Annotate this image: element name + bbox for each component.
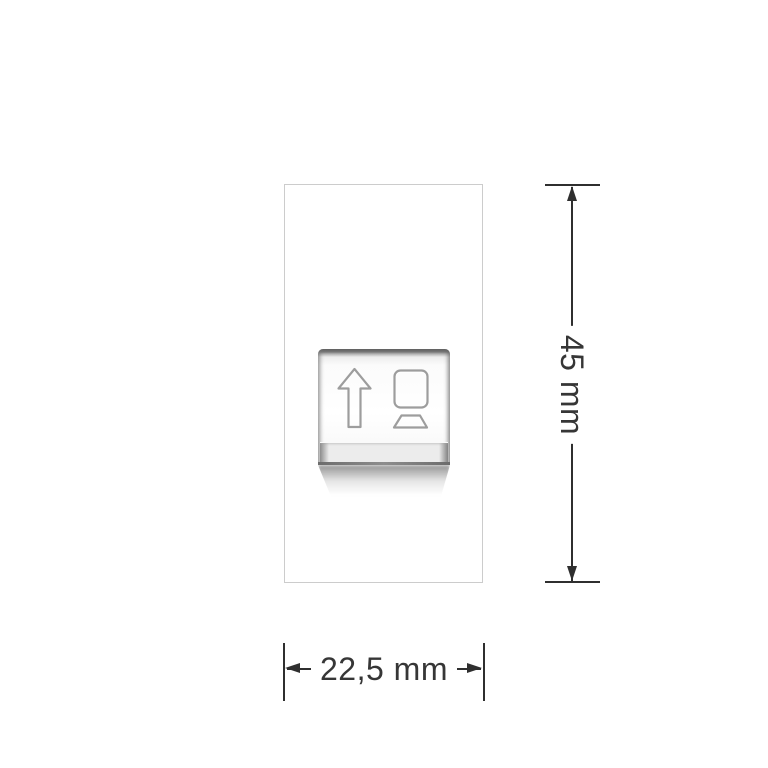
computer-icon [391,369,430,429]
jack-slot-line [318,462,450,465]
diagram-canvas: 45 mm 22,5 mm [0,0,768,768]
height-dim-bottom-tick [545,581,600,583]
width-dim-arrow-left-icon [285,663,300,673]
width-dim-right-extension [483,643,485,701]
socket-faceplate [284,184,483,583]
width-dim-label: 22,5 mm [311,651,457,687]
height-dim-arrow-down-icon [567,566,577,581]
width-dim-arrow-right-icon [467,663,482,673]
up-arrow-icon [337,367,372,429]
jack-shutter-bar [320,442,448,462]
height-dim-arrow-up-icon [567,186,577,201]
height-dim-label: 45 mm [554,326,590,444]
insert-shadow [318,465,450,497]
socket-icon-row [318,349,450,441]
socket-insert [318,349,450,465]
